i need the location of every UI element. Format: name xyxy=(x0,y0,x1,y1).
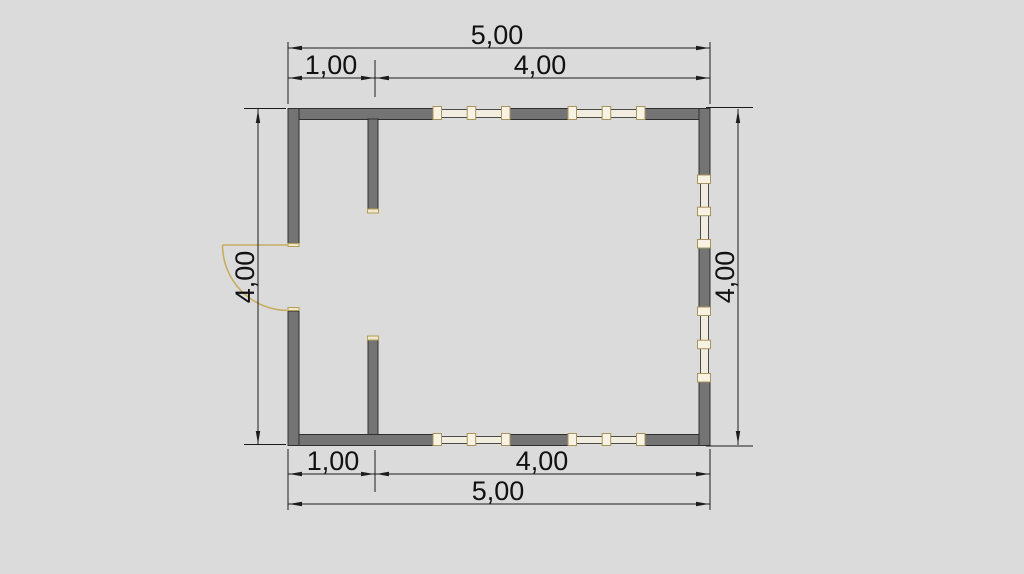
window-post xyxy=(698,207,711,216)
wall-top-middle xyxy=(510,109,568,120)
wall-left-lower xyxy=(288,311,299,446)
window-post xyxy=(467,434,476,446)
window-post xyxy=(502,107,511,120)
wall-top-left xyxy=(288,109,433,120)
window-post xyxy=(637,434,646,446)
window-post xyxy=(698,175,711,184)
window-post xyxy=(433,107,442,120)
window-post xyxy=(467,107,476,120)
floor-plan-canvas: 5,00 1,00 4,00 4,00 4,00 xyxy=(0,0,1024,574)
window-post xyxy=(568,434,577,446)
partition-lower-end-cap xyxy=(368,336,379,340)
wall-left-upper xyxy=(288,109,299,245)
dim-label-top-small: 1,00 xyxy=(305,50,358,80)
window-post xyxy=(568,107,577,120)
wall-right-upper xyxy=(699,109,710,176)
dim-label-top-large: 4,00 xyxy=(514,50,567,80)
dim-label-top-overall: 5,00 xyxy=(471,20,524,50)
dim-label-bottom-overall: 5,00 xyxy=(472,476,525,506)
window-post xyxy=(602,434,611,446)
wall-right-lower xyxy=(699,382,710,446)
wall-bottom-middle xyxy=(510,435,568,446)
partition-upper xyxy=(368,119,378,209)
wall-bottom-left xyxy=(288,435,433,446)
dim-label-right: 4,00 xyxy=(710,251,740,304)
window-post xyxy=(698,374,711,383)
door-jamb-bottom-cap xyxy=(288,308,299,311)
partition-upper-end-cap xyxy=(368,209,379,213)
window-post xyxy=(637,107,646,120)
window-post xyxy=(698,340,711,349)
wall-right-middle xyxy=(699,248,710,307)
partition-lower xyxy=(368,340,378,435)
window-post xyxy=(698,240,711,249)
door-jamb-top-cap xyxy=(288,244,299,247)
dim-label-left: 4,00 xyxy=(230,251,260,304)
dim-label-bottom-large: 4,00 xyxy=(516,446,569,476)
window-post xyxy=(502,434,511,446)
dim-label-bottom-small: 1,00 xyxy=(307,446,360,476)
window-post xyxy=(433,434,442,446)
window-post xyxy=(602,107,611,120)
window-post xyxy=(698,307,711,316)
